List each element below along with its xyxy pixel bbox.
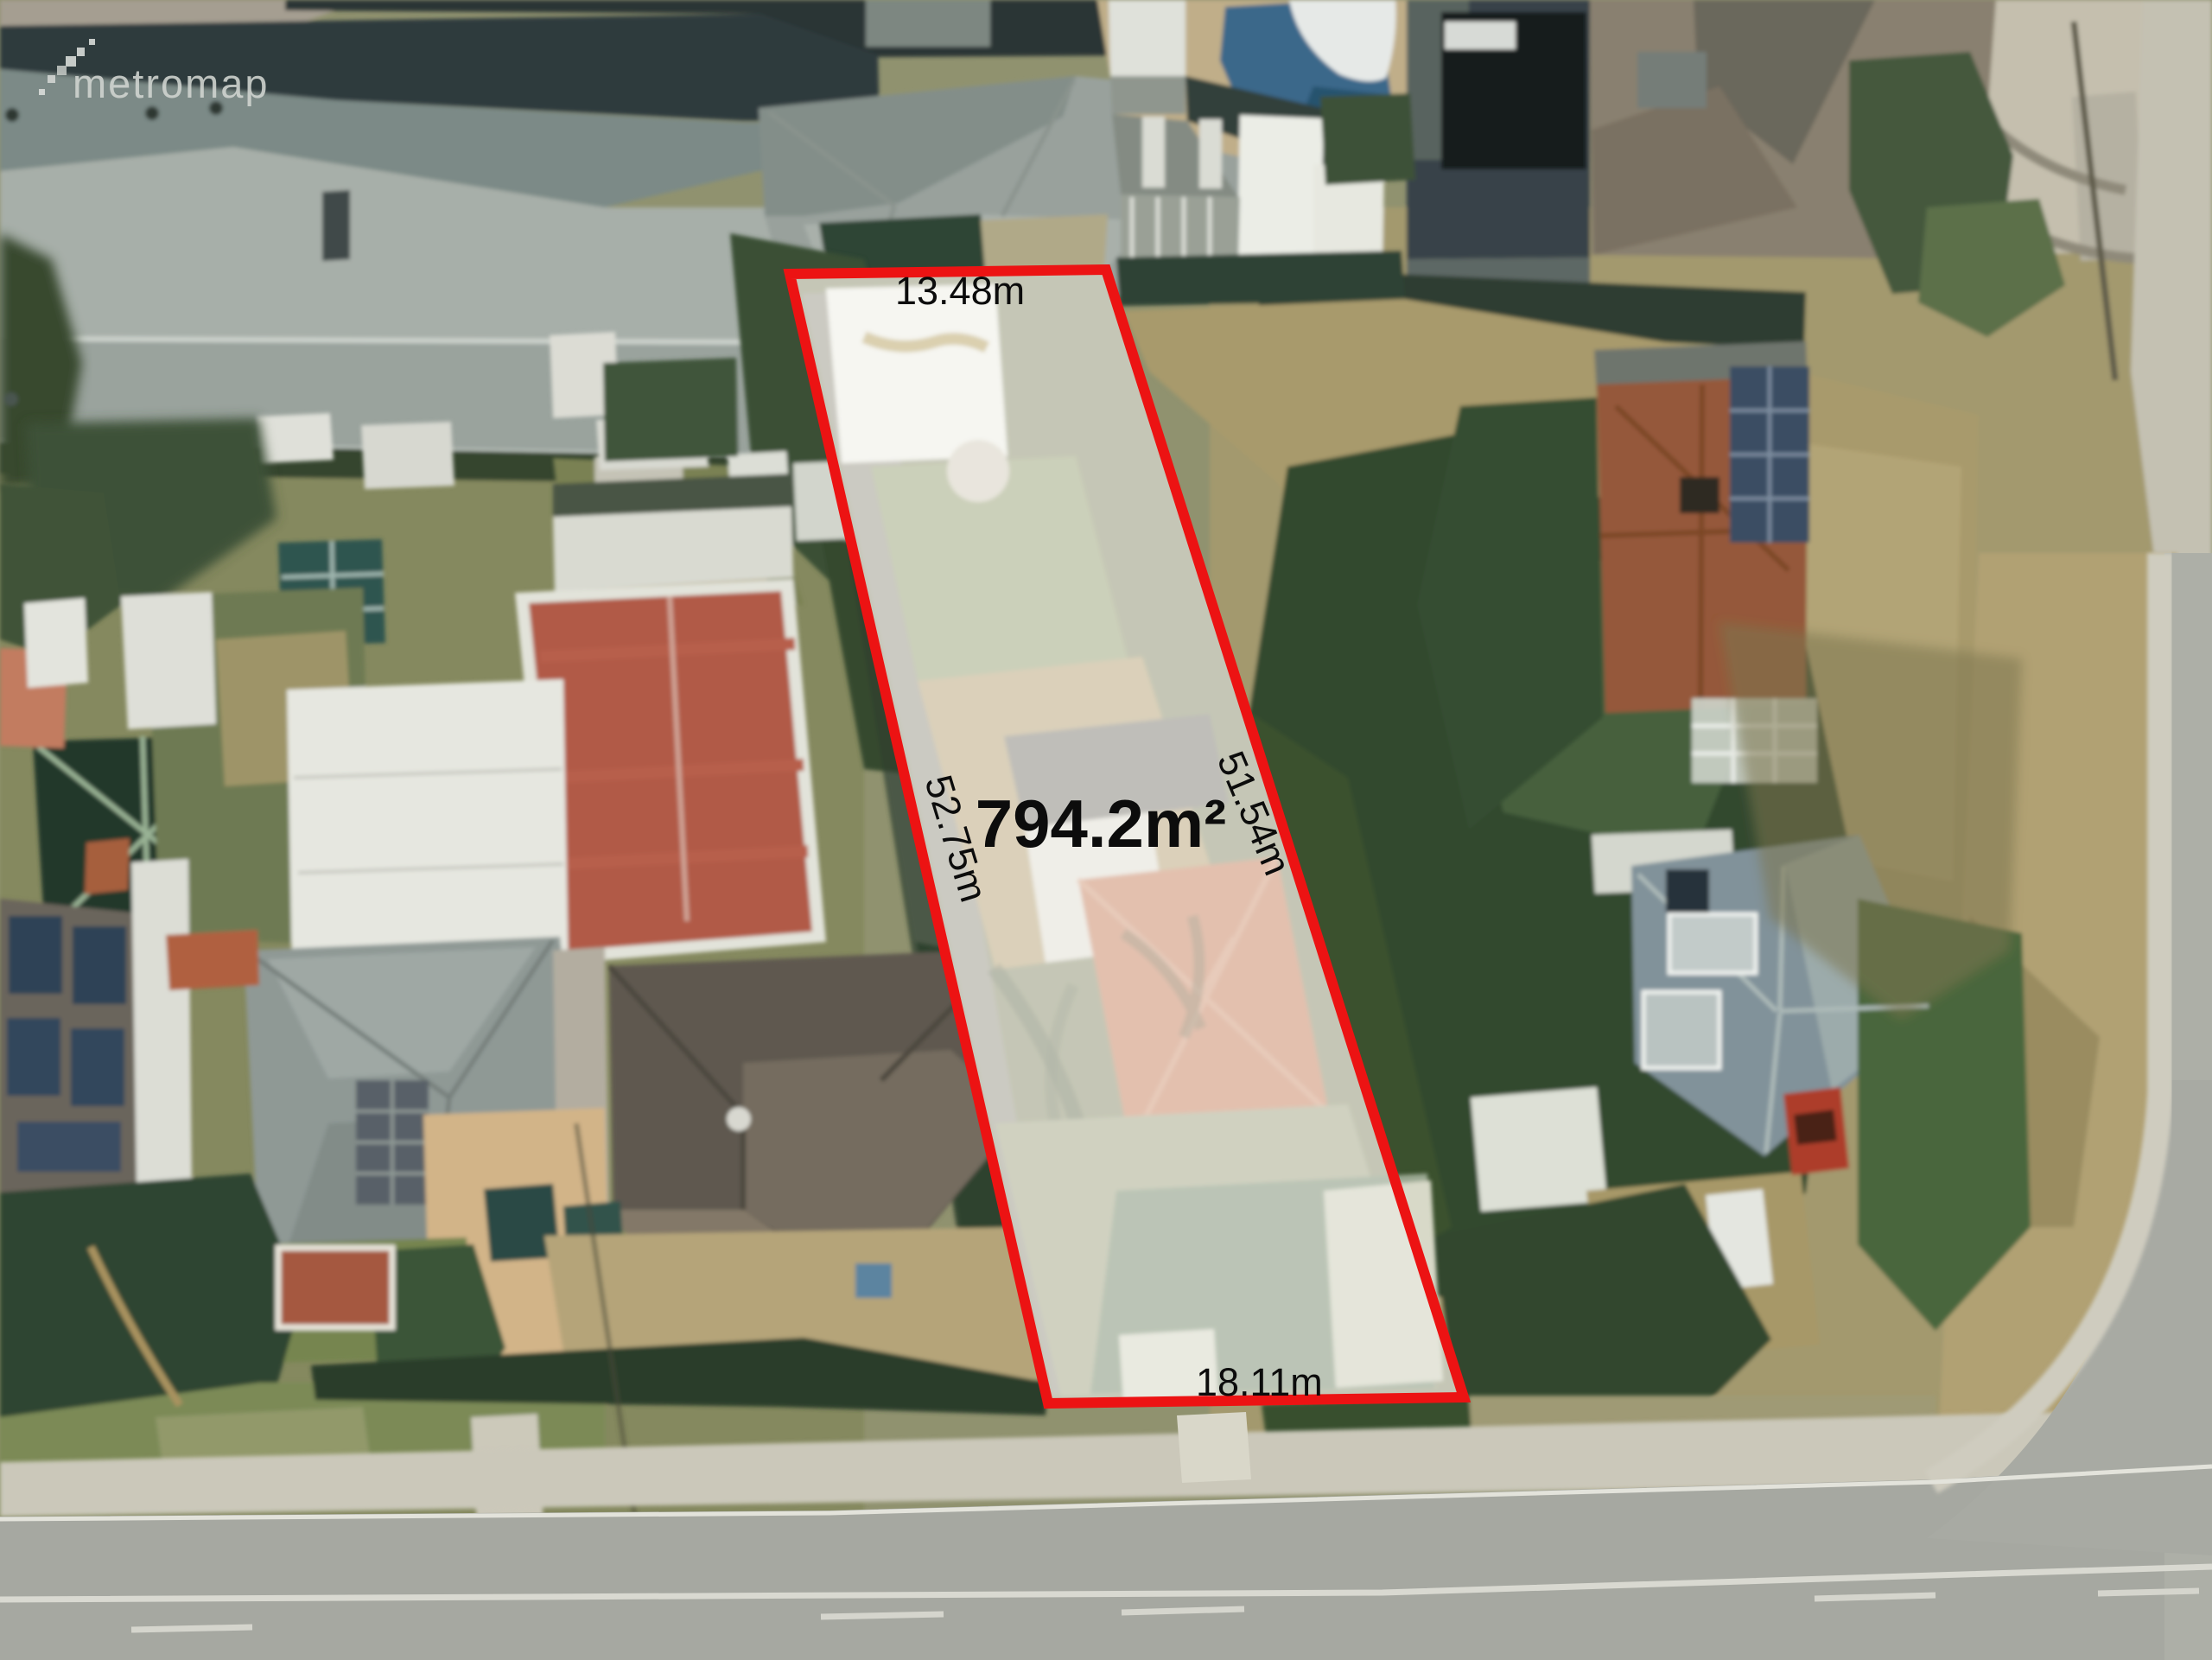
svg-text:13.48m: 13.48m xyxy=(895,269,1025,313)
svg-text:metromap: metromap xyxy=(73,60,270,106)
svg-text:18.11m: 18.11m xyxy=(1196,1360,1323,1404)
svg-text:794.2m²: 794.2m² xyxy=(976,785,1227,862)
